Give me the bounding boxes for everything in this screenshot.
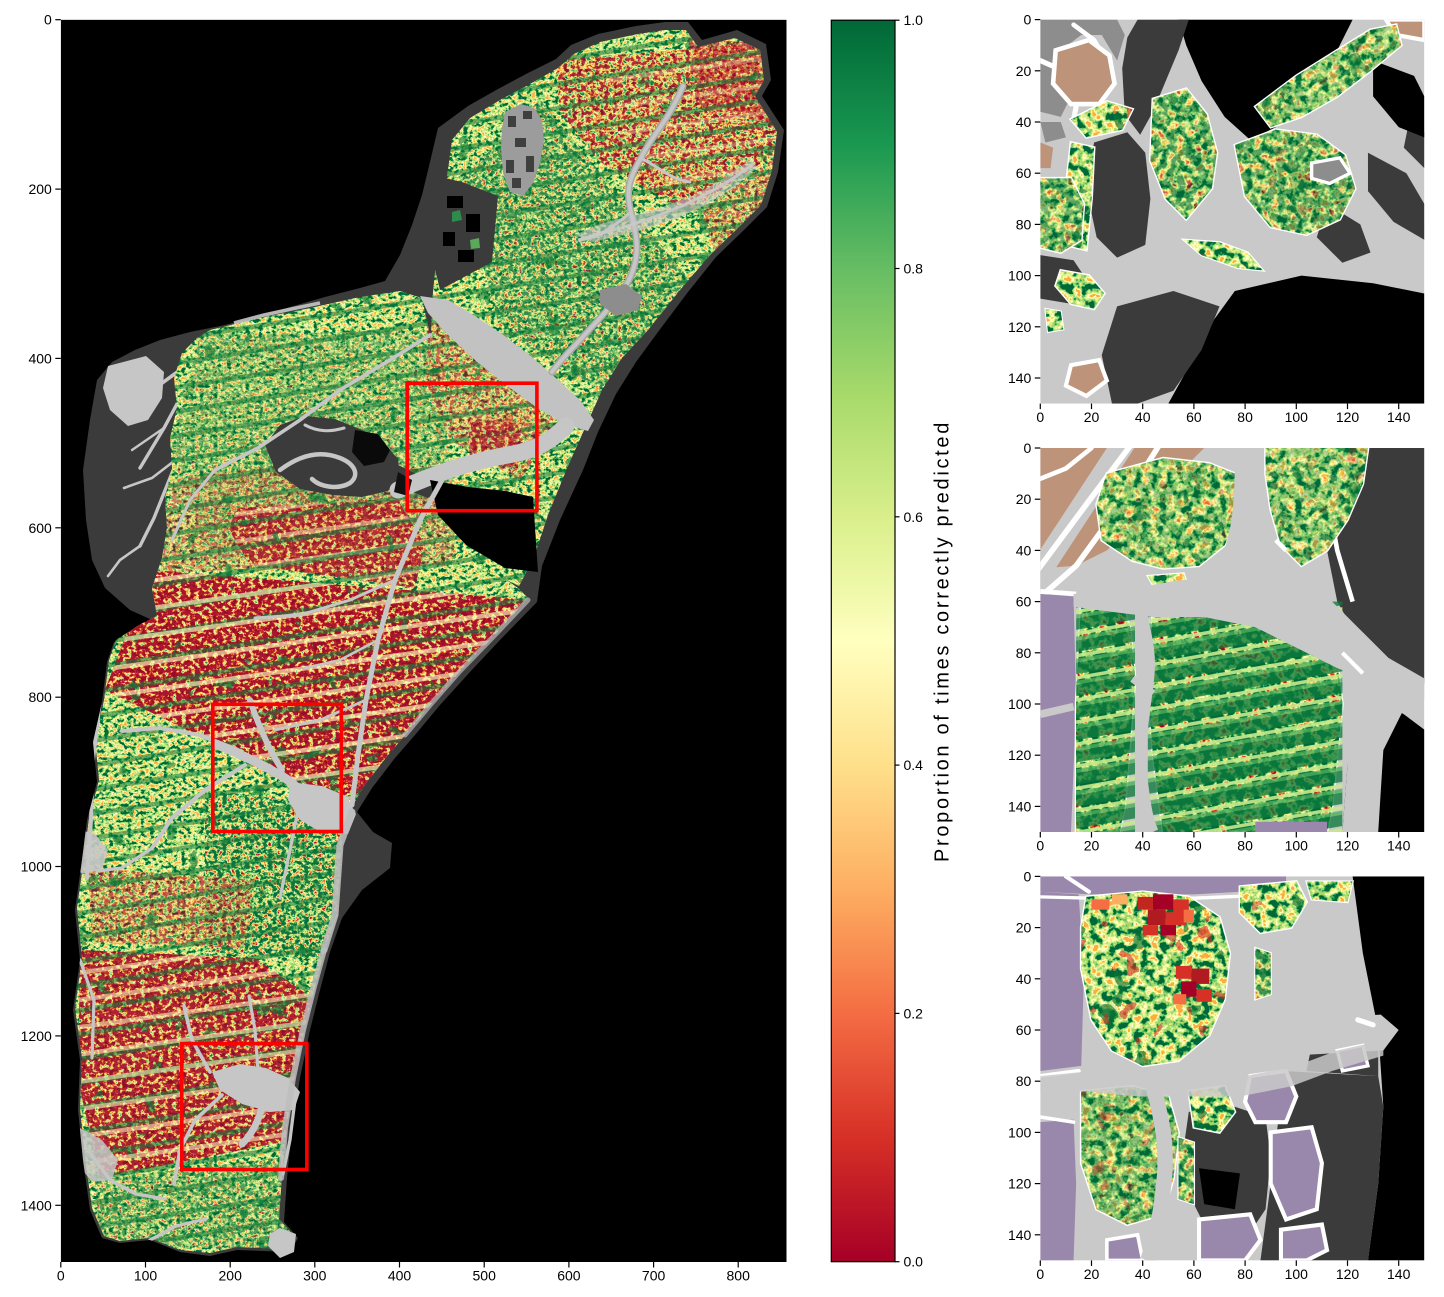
svg-text:60: 60	[1016, 165, 1032, 181]
svg-text:120: 120	[1336, 1266, 1360, 1282]
svg-text:0.4: 0.4	[904, 757, 924, 773]
svg-text:120: 120	[1336, 409, 1360, 425]
svg-text:40: 40	[1135, 838, 1151, 854]
svg-text:140: 140	[1008, 798, 1032, 814]
svg-text:100: 100	[1285, 1266, 1309, 1282]
svg-text:60: 60	[1016, 594, 1032, 610]
svg-text:0: 0	[57, 1268, 65, 1284]
svg-text:400: 400	[28, 350, 52, 366]
svg-text:0: 0	[1024, 12, 1032, 28]
svg-text:700: 700	[642, 1268, 666, 1284]
svg-text:140: 140	[1387, 838, 1411, 854]
svg-text:80: 80	[1237, 838, 1253, 854]
svg-text:60: 60	[1016, 1022, 1032, 1038]
svg-text:1200: 1200	[21, 1028, 52, 1044]
svg-text:100: 100	[1008, 268, 1032, 284]
svg-text:140: 140	[1008, 370, 1032, 386]
svg-text:200: 200	[28, 181, 52, 197]
svg-text:80: 80	[1237, 409, 1253, 425]
svg-text:Proportion of times correctly: Proportion of times correctly predicted	[932, 420, 954, 862]
svg-text:140: 140	[1387, 1266, 1411, 1282]
svg-text:0: 0	[1036, 409, 1044, 425]
svg-text:20: 20	[1016, 63, 1032, 79]
svg-text:1400: 1400	[21, 1197, 52, 1213]
svg-text:20: 20	[1016, 920, 1032, 936]
svg-text:1000: 1000	[21, 859, 52, 875]
svg-text:80: 80	[1016, 216, 1032, 232]
svg-text:0: 0	[1024, 440, 1032, 456]
svg-text:60: 60	[1186, 1266, 1202, 1282]
svg-text:100: 100	[1008, 696, 1032, 712]
svg-text:40: 40	[1016, 114, 1032, 130]
svg-text:100: 100	[1008, 1124, 1032, 1140]
svg-text:0: 0	[1036, 1266, 1044, 1282]
svg-text:20: 20	[1084, 409, 1100, 425]
svg-text:80: 80	[1016, 1073, 1032, 1089]
svg-text:100: 100	[1285, 838, 1309, 854]
svg-text:40: 40	[1016, 971, 1032, 987]
svg-text:300: 300	[303, 1268, 327, 1284]
svg-text:20: 20	[1084, 1266, 1100, 1282]
svg-text:40: 40	[1135, 1266, 1151, 1282]
svg-text:60: 60	[1186, 409, 1202, 425]
svg-text:200: 200	[219, 1268, 243, 1284]
svg-text:800: 800	[727, 1268, 751, 1284]
svg-text:0: 0	[1024, 868, 1032, 884]
svg-text:0.2: 0.2	[904, 1005, 924, 1021]
svg-text:20: 20	[1084, 838, 1100, 854]
svg-text:100: 100	[134, 1268, 158, 1284]
svg-text:0.8: 0.8	[904, 261, 924, 277]
svg-text:500: 500	[473, 1268, 497, 1284]
svg-text:120: 120	[1008, 319, 1032, 335]
svg-text:80: 80	[1237, 1266, 1253, 1282]
svg-text:400: 400	[388, 1268, 412, 1284]
svg-text:1.0: 1.0	[904, 12, 924, 28]
svg-text:0.0: 0.0	[904, 1254, 924, 1270]
svg-text:140: 140	[1387, 409, 1411, 425]
svg-text:0: 0	[44, 12, 52, 28]
svg-text:600: 600	[28, 520, 52, 536]
svg-text:800: 800	[28, 689, 52, 705]
svg-text:120: 120	[1008, 747, 1032, 763]
svg-text:0: 0	[1036, 838, 1044, 854]
svg-text:40: 40	[1135, 409, 1151, 425]
svg-text:600: 600	[557, 1268, 581, 1284]
svg-text:60: 60	[1186, 838, 1202, 854]
svg-text:80: 80	[1016, 645, 1032, 661]
svg-text:40: 40	[1016, 542, 1032, 558]
svg-text:20: 20	[1016, 491, 1032, 507]
svg-text:0.6: 0.6	[904, 509, 924, 525]
svg-text:100: 100	[1285, 409, 1309, 425]
svg-text:140: 140	[1008, 1227, 1032, 1243]
svg-text:120: 120	[1336, 838, 1360, 854]
svg-text:120: 120	[1008, 1176, 1032, 1192]
